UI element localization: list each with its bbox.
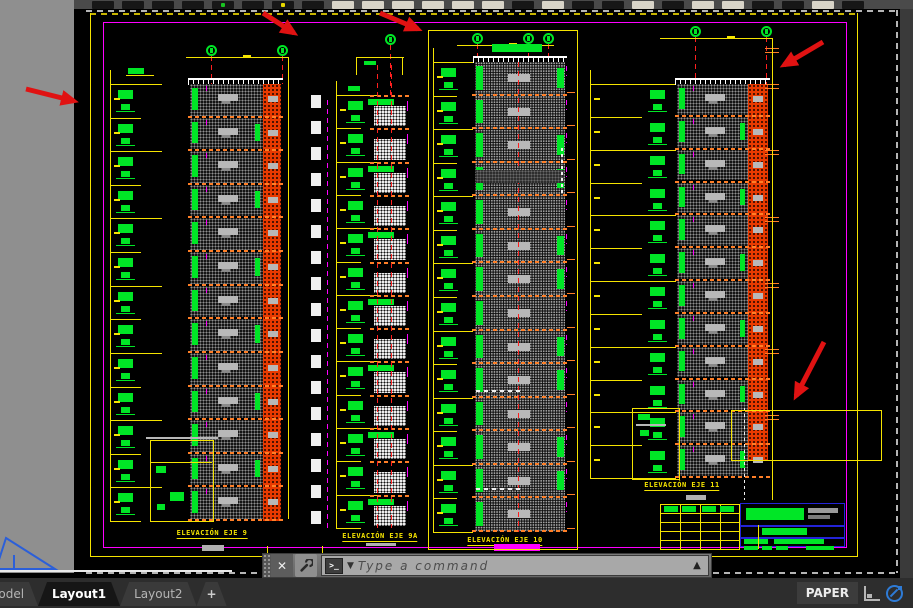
window-strip xyxy=(679,351,685,372)
window-sill xyxy=(218,94,238,101)
paper-space-toggle[interactable]: PAPER xyxy=(797,582,858,604)
window-sill xyxy=(705,357,725,364)
elevation-label-eje9a: ELEVACIÓN EJE 9A xyxy=(342,532,417,542)
level-marker xyxy=(348,401,363,410)
window-sill xyxy=(705,225,725,232)
tab-model[interactable]: Model xyxy=(0,582,38,606)
floor-line xyxy=(370,428,410,430)
window-strip xyxy=(192,323,198,345)
section-panel xyxy=(374,139,406,159)
floor-line xyxy=(370,95,410,97)
level-marker xyxy=(650,123,665,132)
masonry-column xyxy=(748,84,768,460)
section-panel xyxy=(374,206,406,226)
level-marker xyxy=(348,168,363,177)
level-marker xyxy=(650,320,665,329)
level-marker xyxy=(118,157,133,166)
level-marker xyxy=(348,201,363,210)
window-strip xyxy=(192,88,198,110)
autocad-layout-screen: ELEVACIÓN EJE 9ELEVACIÓN EJE 9AELEVACIÓN… xyxy=(0,0,913,608)
floor-line xyxy=(370,395,410,397)
window-sill xyxy=(218,296,238,303)
window-sill xyxy=(705,422,725,429)
window-sill xyxy=(705,160,725,167)
level-marker xyxy=(348,434,363,443)
window-strip xyxy=(679,187,685,208)
window-sill xyxy=(705,291,725,298)
command-bar-customize-button[interactable] xyxy=(295,554,317,577)
section-panel xyxy=(374,472,406,492)
level-marker xyxy=(650,353,665,362)
axis-bubble xyxy=(277,45,288,56)
level-marker xyxy=(118,393,133,402)
level-marker xyxy=(650,254,665,263)
window-strip xyxy=(192,290,198,312)
window-sill xyxy=(218,228,238,235)
floor-line xyxy=(370,195,410,197)
axis-bubble xyxy=(761,26,772,37)
axis-bubble xyxy=(690,26,701,37)
window-sill xyxy=(218,161,238,168)
elevation-label-eje11: ELEVACIÓN EJE 11 xyxy=(644,481,719,491)
section-panel xyxy=(374,506,406,526)
status-bar-right: PAPER xyxy=(797,578,913,608)
wrench-icon xyxy=(299,559,313,573)
section-panel xyxy=(374,106,406,126)
window-strip xyxy=(679,252,685,273)
level-marker xyxy=(348,334,363,343)
floor-line xyxy=(370,162,410,164)
window-sill xyxy=(705,324,725,331)
window-strip xyxy=(192,391,198,413)
isodraft-icon[interactable] xyxy=(864,586,880,601)
window-sill xyxy=(705,455,725,462)
level-marker xyxy=(348,234,363,243)
axis-grid-line xyxy=(695,37,696,84)
level-marker xyxy=(650,221,665,230)
new-layout-button[interactable]: + xyxy=(197,582,227,606)
window-strip xyxy=(192,222,198,244)
floor-line xyxy=(370,228,410,230)
level-marker xyxy=(118,359,133,368)
floor-line xyxy=(370,461,410,463)
floor-line xyxy=(370,361,410,363)
level-marker xyxy=(348,501,363,510)
window-strip xyxy=(679,285,685,306)
section-panel xyxy=(374,173,406,193)
axis-bubble xyxy=(206,45,217,56)
command-placeholder: Type a command xyxy=(358,559,489,573)
axis-grid-line xyxy=(391,65,392,528)
window-strip xyxy=(192,155,198,177)
command-bar-close-button[interactable]: ✕ xyxy=(271,554,293,577)
level-marker xyxy=(650,156,665,165)
section-panel xyxy=(374,306,406,326)
window-strip xyxy=(192,122,198,144)
level-marker xyxy=(348,101,363,110)
level-marker xyxy=(118,124,133,133)
layout-tab-bar: Model Layout1 Layout2 + PAPER xyxy=(0,578,913,608)
section-panel xyxy=(374,372,406,392)
level-marker xyxy=(118,460,133,469)
level-marker xyxy=(348,134,363,143)
level-marker xyxy=(118,325,133,334)
axis-bubble xyxy=(385,34,396,45)
level-marker xyxy=(348,367,363,376)
level-marker xyxy=(118,224,133,233)
level-marker xyxy=(650,386,665,395)
window-strip xyxy=(192,189,198,211)
window-strip xyxy=(679,121,685,142)
level-marker xyxy=(650,90,665,99)
command-expand-icon[interactable]: ▲ xyxy=(689,560,705,571)
command-bar[interactable]: ✕ >_ ▼ Type a command ▲ xyxy=(262,553,712,578)
floor-line xyxy=(370,128,410,130)
level-marker xyxy=(118,292,133,301)
command-bar-grip[interactable] xyxy=(263,554,271,577)
tab-layout1[interactable]: Layout1 xyxy=(38,582,120,606)
level-marker xyxy=(348,301,363,310)
scale-bar xyxy=(366,543,396,546)
logo-block xyxy=(808,508,838,513)
level-marker xyxy=(650,189,665,198)
section-panel xyxy=(374,406,406,426)
scale-bar xyxy=(686,495,706,500)
level-marker xyxy=(118,90,133,99)
window-strip xyxy=(192,256,198,278)
window-strip xyxy=(679,154,685,175)
level-marker xyxy=(348,268,363,277)
section-panel xyxy=(374,239,406,259)
window-strip xyxy=(679,318,685,339)
floor-line xyxy=(370,495,410,497)
window-sill xyxy=(705,390,725,397)
window-strip xyxy=(679,384,685,405)
window-sill xyxy=(218,497,238,504)
level-marker xyxy=(118,258,133,267)
floor-line xyxy=(370,262,410,264)
window-sill xyxy=(218,363,238,370)
floor-line xyxy=(370,328,410,330)
window-strip xyxy=(679,219,685,240)
axis-grid-line xyxy=(377,65,378,528)
axis-grid-line xyxy=(766,37,767,84)
graphics-performance-icon[interactable] xyxy=(886,585,903,602)
window-sill xyxy=(705,258,725,265)
section-panel xyxy=(374,439,406,459)
title-block[interactable] xyxy=(658,502,845,549)
window-sill xyxy=(705,193,725,200)
command-dropdown-icon[interactable]: ▼ xyxy=(347,561,354,571)
window-strip xyxy=(192,357,198,379)
level-marker xyxy=(348,467,363,476)
level-marker xyxy=(118,493,133,502)
window-sill xyxy=(218,430,238,437)
dimension-ladder xyxy=(590,70,591,478)
scale-bar xyxy=(202,545,224,551)
floor-line xyxy=(370,295,410,297)
section-panel xyxy=(374,339,406,359)
annotation-rectangle[interactable] xyxy=(731,410,882,461)
window-sill xyxy=(705,94,725,101)
window-sill xyxy=(218,464,238,471)
section-panel xyxy=(374,273,406,293)
level-marker xyxy=(650,287,665,296)
command-input[interactable]: >_ ▼ Type a command ▲ xyxy=(321,555,709,576)
window-sill xyxy=(218,195,238,202)
window-sill xyxy=(218,329,238,336)
command-prompt-icon: >_ xyxy=(325,558,343,574)
level-marker xyxy=(118,426,133,435)
level-marker xyxy=(118,191,133,200)
window-sill xyxy=(218,397,238,404)
window-sill xyxy=(705,127,725,134)
window-strip xyxy=(679,88,685,109)
window-sill xyxy=(218,128,238,135)
tab-layout2[interactable]: Layout2 xyxy=(120,582,196,606)
elevation-label-eje9: ELEVACIÓN EJE 9 xyxy=(177,529,248,539)
window-sill xyxy=(218,262,238,269)
floor-line xyxy=(675,476,770,478)
